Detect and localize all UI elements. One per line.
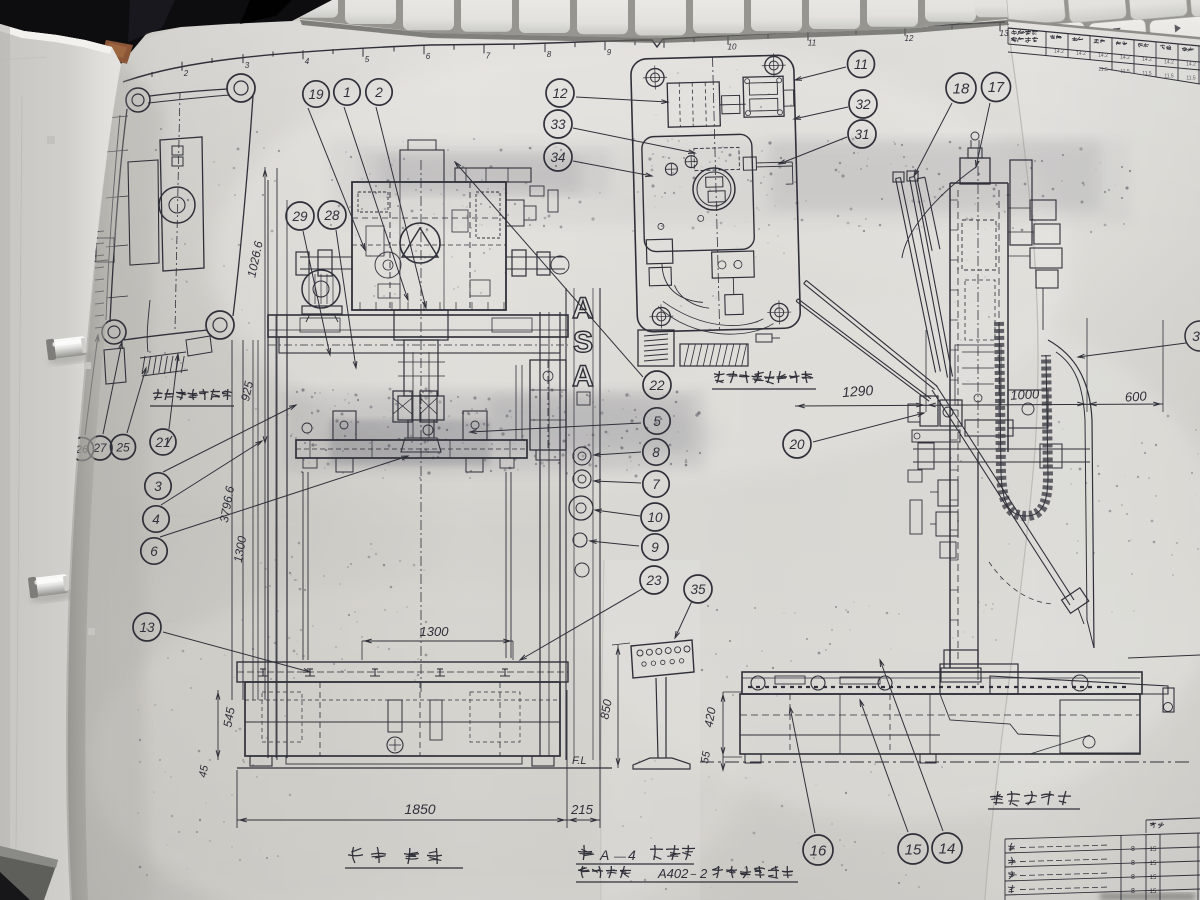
svg-text:11.5: 11.5 bbox=[1120, 69, 1130, 75]
svg-text:8: 8 bbox=[1131, 888, 1135, 895]
svg-text:7: 7 bbox=[486, 51, 491, 60]
svg-text:16: 16 bbox=[810, 842, 827, 859]
svg-text:A402: A402 bbox=[657, 866, 689, 881]
svg-text:8: 8 bbox=[547, 50, 552, 59]
svg-text:31: 31 bbox=[854, 127, 869, 142]
svg-text:14.2: 14.2 bbox=[1186, 61, 1196, 67]
svg-text:10: 10 bbox=[647, 510, 663, 525]
svg-text:S: S bbox=[573, 326, 593, 359]
svg-text:14.2: 14.2 bbox=[1164, 59, 1174, 65]
svg-text:A: A bbox=[572, 360, 594, 393]
svg-text:15: 15 bbox=[1150, 847, 1157, 853]
svg-text:4: 4 bbox=[305, 57, 310, 66]
svg-text:11.5: 11.5 bbox=[1142, 71, 1152, 77]
svg-text:12: 12 bbox=[552, 86, 568, 101]
svg-text:28: 28 bbox=[323, 208, 340, 223]
svg-text:15: 15 bbox=[1150, 875, 1157, 881]
svg-text:8: 8 bbox=[1131, 860, 1135, 867]
svg-text:14.2: 14.2 bbox=[1120, 55, 1130, 61]
svg-text:6: 6 bbox=[426, 52, 431, 61]
svg-text:35: 35 bbox=[690, 582, 706, 597]
svg-text:15: 15 bbox=[1150, 861, 1157, 867]
svg-text:2: 2 bbox=[374, 85, 383, 100]
svg-text:2: 2 bbox=[183, 69, 189, 78]
svg-text:14.2: 14.2 bbox=[1054, 49, 1064, 55]
svg-text:13: 13 bbox=[139, 620, 155, 635]
svg-text:23: 23 bbox=[645, 573, 662, 588]
svg-text:3: 3 bbox=[154, 479, 162, 494]
svg-text:1290: 1290 bbox=[842, 382, 874, 400]
svg-text:7: 7 bbox=[652, 477, 660, 492]
svg-text:11.5: 11.5 bbox=[1164, 73, 1174, 79]
svg-text:9: 9 bbox=[607, 48, 612, 57]
svg-text:11: 11 bbox=[808, 39, 816, 48]
svg-text:3: 3 bbox=[245, 61, 250, 70]
svg-text:33: 33 bbox=[550, 117, 566, 132]
svg-text:20: 20 bbox=[788, 437, 805, 452]
svg-text:32: 32 bbox=[855, 97, 871, 112]
svg-text:11.5: 11.5 bbox=[1186, 75, 1196, 81]
svg-text:1000: 1000 bbox=[1010, 386, 1040, 403]
svg-text:22: 22 bbox=[648, 378, 665, 393]
svg-text:2: 2 bbox=[699, 866, 708, 881]
svg-text:8: 8 bbox=[1131, 874, 1135, 881]
svg-text:29: 29 bbox=[291, 209, 308, 224]
svg-text:1300: 1300 bbox=[420, 624, 450, 639]
svg-text:8: 8 bbox=[1131, 846, 1135, 853]
svg-text:9: 9 bbox=[651, 540, 659, 555]
svg-text:12: 12 bbox=[905, 34, 914, 43]
svg-text:3: 3 bbox=[1192, 328, 1200, 344]
svg-text:15: 15 bbox=[905, 841, 922, 858]
svg-text:5: 5 bbox=[653, 414, 661, 429]
svg-text:25: 25 bbox=[115, 440, 130, 454]
svg-text:600: 600 bbox=[1125, 388, 1148, 404]
svg-text:11: 11 bbox=[854, 57, 868, 72]
svg-text:17: 17 bbox=[988, 80, 1005, 96]
svg-text:8: 8 bbox=[652, 445, 660, 460]
svg-text:34: 34 bbox=[550, 150, 565, 165]
svg-text:−: − bbox=[690, 869, 697, 881]
svg-text:10: 10 bbox=[728, 43, 737, 52]
svg-text:F.L: F.L bbox=[572, 755, 586, 767]
svg-text:—: — bbox=[613, 849, 627, 863]
svg-text:4: 4 bbox=[152, 512, 160, 527]
svg-text:1: 1 bbox=[343, 85, 351, 100]
svg-text:14.2: 14.2 bbox=[1098, 53, 1108, 59]
svg-text:18: 18 bbox=[953, 80, 970, 97]
svg-text:11.5: 11.5 bbox=[1098, 67, 1108, 73]
svg-text:14: 14 bbox=[939, 840, 956, 857]
svg-text:215: 215 bbox=[570, 802, 593, 817]
svg-text:5: 5 bbox=[365, 55, 370, 64]
svg-text:6: 6 bbox=[150, 544, 158, 559]
svg-text:4: 4 bbox=[628, 847, 636, 863]
svg-text:1850: 1850 bbox=[404, 801, 435, 817]
svg-text:14.2: 14.2 bbox=[1142, 57, 1152, 63]
svg-text:A: A bbox=[599, 847, 609, 863]
svg-text:19: 19 bbox=[308, 87, 324, 102]
svg-text:15: 15 bbox=[1150, 889, 1157, 895]
svg-text:14.2: 14.2 bbox=[1076, 51, 1086, 57]
